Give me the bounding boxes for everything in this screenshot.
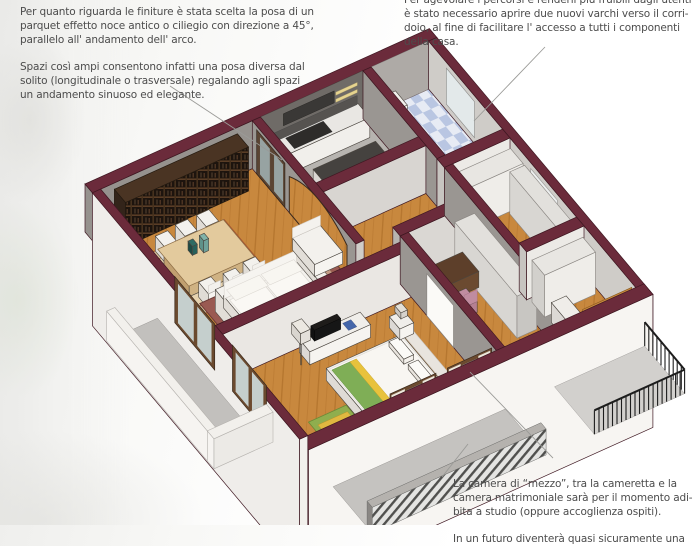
annotation-line: La camera di “mezzo”, tra la cameretta e…: [453, 477, 692, 491]
annotation-line: parallelo all' andamento dell' arco.: [20, 33, 314, 47]
annotation-line: della casa.: [404, 35, 691, 49]
annotation-line: solito (longitudinale o trasversale) reg…: [20, 74, 314, 88]
annotation-top-left: Per quanto riguarda le finiture è stata …: [20, 5, 314, 102]
annotation-line: doio, al fine di facilitare l' accesso a…: [404, 21, 691, 35]
annotation-line: camera matrimoniale sarà per il momento …: [453, 491, 692, 505]
annotation-line: In un futuro diventerà quasi sicuramente…: [453, 532, 692, 546]
leader-line-corridor: [474, 47, 545, 121]
annotation-line: Spazi così ampi consentono infatti una p…: [20, 60, 314, 74]
annotation-line: Per quanto riguarda le finiture è stata …: [20, 5, 314, 19]
presentation-page: { "annotations": { "top_left": { "p1_lin…: [0, 0, 700, 525]
annotation-top-right: Per agevolare i percorsi e renderli più …: [404, 0, 691, 49]
annotation-line: Per agevolare i percorsi e renderli più …: [404, 0, 691, 7]
annotation-line: bita a studio (oppure accoglienza ospiti…: [453, 505, 692, 519]
paragraph-gap: [453, 519, 692, 532]
annotation-bottom-right: La camera di “mezzo”, tra la cameretta e…: [453, 477, 692, 546]
annotation-line: un andamento sinuoso ed elegante.: [20, 88, 314, 102]
annotation-line: è stato necessario aprire due nuovi varc…: [404, 7, 691, 21]
paragraph-gap: [20, 47, 314, 60]
annotation-line: parquet effetto noce antico o ciliegio c…: [20, 19, 314, 33]
